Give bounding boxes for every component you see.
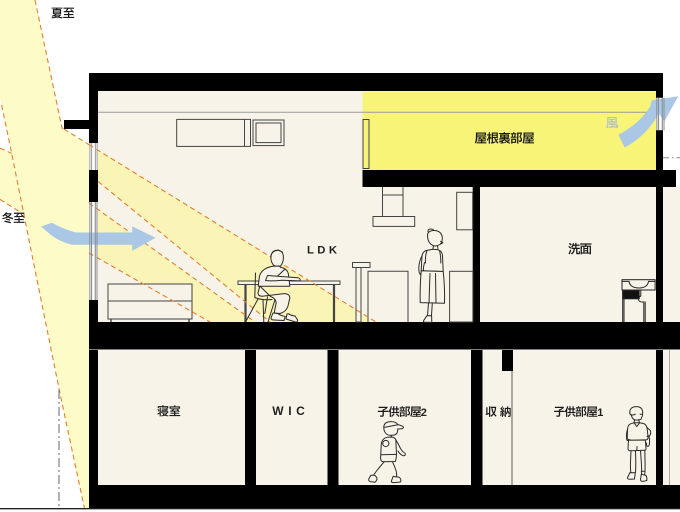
svg-text:WIC: WIC (272, 404, 309, 418)
svg-text:1: 1 (597, 407, 603, 419)
svg-text:2: 2 (421, 407, 427, 419)
svg-text:LDK: LDK (307, 245, 340, 257)
